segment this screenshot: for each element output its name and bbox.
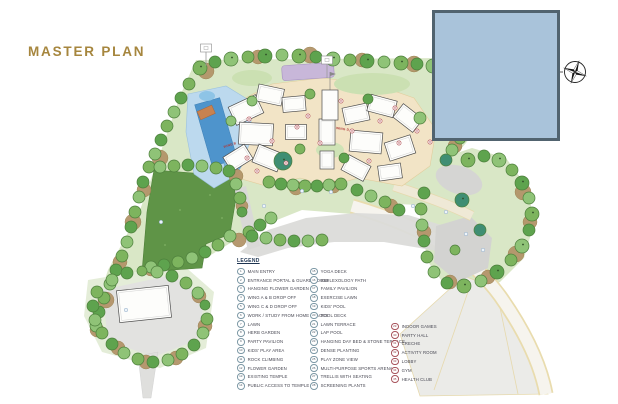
- legend-item-number: 32: [391, 349, 399, 357]
- sports-arena: [282, 62, 335, 81]
- legend-item-label: EXISTING TEMPLE: [248, 374, 288, 379]
- legend-item: 29INDOOR GAMES: [391, 322, 437, 331]
- legend-item-number: 21: [310, 320, 318, 328]
- legend-item-number: 19: [310, 303, 318, 311]
- legend-item-label: LOBBY: [402, 359, 417, 364]
- legend-item-number: 18: [310, 294, 318, 302]
- legend-item-number: 9: [237, 338, 245, 346]
- legend-item: 15YOGA DECK: [310, 267, 405, 276]
- legend-item: 33LOBBY: [391, 357, 437, 366]
- legend-item-number: 14: [237, 382, 245, 390]
- legend-item-number: 23: [310, 338, 318, 346]
- legend-item-label: GYM: [402, 368, 412, 373]
- legend-item-number: 30: [391, 331, 399, 339]
- legend-item-number: 8: [237, 329, 245, 337]
- legend-item-label: SCREENING PLANTS: [321, 383, 366, 388]
- legend-item-number: 31: [391, 340, 399, 348]
- legend-item-number: 15: [310, 268, 318, 276]
- legend-item-label: HANGING FLOWER GARDEN: [248, 286, 309, 291]
- legend-item-number: 4: [237, 294, 245, 302]
- legend-item-label: KIDS' PLAY AREA: [248, 348, 285, 353]
- legend-item-number: 24: [310, 347, 318, 355]
- legend-item-label: MAIN ENTRY: [248, 269, 275, 274]
- legend-item-label: LAWN TERRACE: [321, 322, 356, 327]
- legend-item-label: WING A & B DROP OFF: [248, 295, 297, 300]
- legend-item: 16REFLEXOLOGY PATH: [310, 276, 405, 285]
- legend-item-number: 33: [391, 358, 399, 366]
- legend-item-number: 5: [237, 303, 245, 311]
- legend-item-number: 3: [237, 285, 245, 293]
- legend-item-number: 34: [391, 367, 399, 375]
- legend-item: 18EXERCISE LAWN: [310, 293, 405, 302]
- legend-item-number: 2: [237, 276, 245, 284]
- legend-column-3: 29INDOOR GAMES30PARTY HALL31CRECHE32ACTI…: [391, 322, 437, 384]
- legend-item-number: 7: [237, 320, 245, 328]
- legend-item-number: 1: [237, 268, 245, 276]
- legend-item-number: 35: [391, 375, 399, 383]
- legend-item-label: KIDS' POOL: [321, 304, 346, 309]
- legend-item-label: POOL DECK: [321, 313, 347, 318]
- legend-item-label: HERB GARDEN: [248, 330, 281, 335]
- legend-item-label: YOGA DECK: [321, 269, 347, 274]
- legend-item-label: PARTY PAVILION: [248, 339, 284, 344]
- legend-item-number: 26: [310, 364, 318, 372]
- legend-item-label: PUBLIC ACCESS TO TEMPLE: [248, 383, 310, 388]
- cover-rectangle: [432, 10, 560, 141]
- page-title: MASTER PLAN: [28, 44, 145, 59]
- legend-item-number: 27: [310, 373, 318, 381]
- legend-item-number: 12: [237, 364, 245, 372]
- legend-item-number: 11: [237, 356, 245, 364]
- legend-item-label: WING C & D DROP OFF: [248, 304, 298, 309]
- legend-item-number: 29: [391, 323, 399, 331]
- legend-item: 30PARTY HALL: [391, 331, 437, 340]
- legend-item-number: 13: [237, 373, 245, 381]
- legend-item-label: FAMILY PAVILION: [321, 286, 358, 291]
- legend-item-label: TRELLIS WITH SEATING: [321, 374, 372, 379]
- legend-item-label: MULTI-PURPOSE SPORTS ARENA: [321, 366, 393, 371]
- legend-item-label: DENSE PLANTING: [321, 348, 360, 353]
- legend-item: 35HEALTH CLUB: [391, 375, 437, 384]
- legend-item-label: EXERCISE LAWN: [321, 295, 357, 300]
- legend-item-label: PLAY ZONE VIEW: [321, 357, 358, 362]
- legend-item-number: 16: [310, 276, 318, 284]
- legend-item-label: REFLEXOLOGY PATH: [321, 278, 367, 283]
- master-plan-page: WING B WING D MASTER PLAN LEGEND 1MAIN E…: [0, 0, 618, 404]
- legend-item-number: 17: [310, 285, 318, 293]
- legend-item: 20POOL DECK: [310, 311, 405, 320]
- legend-item: 19KIDS' POOL: [310, 302, 405, 311]
- legend-item-number: 20: [310, 312, 318, 320]
- compass-icon: [559, 57, 589, 87]
- legend-item-label: ACTIVITY ROOM: [402, 350, 437, 355]
- legend-item: 17FAMILY PAVILION: [310, 285, 405, 294]
- legend-item-number: 10: [237, 347, 245, 355]
- legend-item: 34GYM: [391, 366, 437, 375]
- legend-item-label: CRECHE: [402, 341, 421, 346]
- legend-item-label: PARTY HALL: [402, 333, 429, 338]
- legend-item: 31CRECHE: [391, 340, 437, 349]
- legend-item-number: 22: [310, 329, 318, 337]
- legend-item-number: 6: [237, 312, 245, 320]
- legend-item: 32ACTIVITY ROOM: [391, 348, 437, 357]
- legend-item-label: INDOOR GAMES: [402, 324, 437, 329]
- legend-item-label: LAP POOL: [321, 330, 343, 335]
- legend-item-label: FLOWER GARDEN: [248, 366, 287, 371]
- legend-item-label: ROCK CLIMBING: [248, 357, 284, 362]
- legend-item-number: 25: [310, 356, 318, 364]
- legend-item-label: LAWN: [248, 322, 261, 327]
- legend-heading: LEGEND: [237, 258, 329, 264]
- legend-item-number: 28: [310, 382, 318, 390]
- legend-item-label: HEALTH CLUB: [402, 377, 432, 382]
